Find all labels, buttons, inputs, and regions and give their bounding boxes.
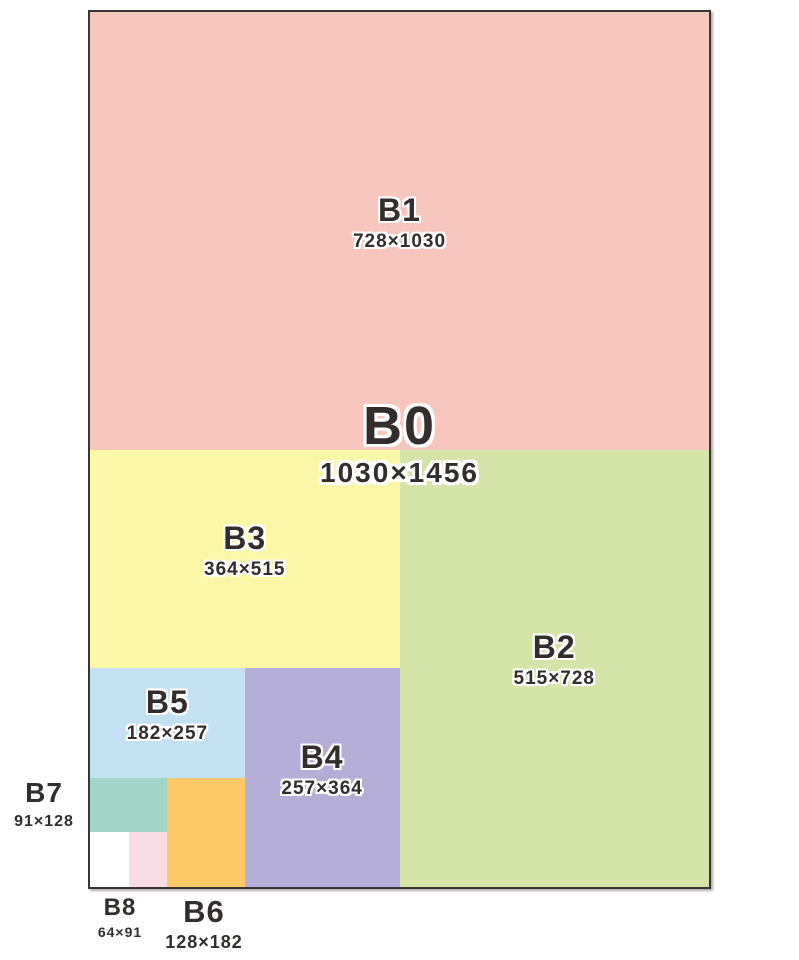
region-b6 bbox=[167, 778, 244, 887]
region-b4: B4 257×364 bbox=[245, 668, 400, 887]
b5-size-name: B5 bbox=[127, 683, 209, 721]
b0-size-name: B0 bbox=[320, 398, 479, 454]
b6-size-name: B6 bbox=[150, 893, 258, 930]
b1-label: B1 728×1030 bbox=[353, 191, 446, 255]
b3-label: B3 364×515 bbox=[204, 519, 286, 583]
b0-label: B0 1030×1456 bbox=[320, 398, 479, 489]
b5-label: B5 182×257 bbox=[127, 683, 209, 747]
b6-dimensions: 128×182 bbox=[150, 930, 258, 954]
region-b7 bbox=[90, 778, 167, 833]
b7-label: B7 91×128 bbox=[0, 776, 88, 834]
b3-size-name: B3 bbox=[204, 519, 286, 557]
region-b5: B5 182×257 bbox=[90, 668, 245, 777]
b4-size-name: B4 bbox=[281, 738, 363, 776]
b4-dimensions: 257×364 bbox=[281, 776, 363, 802]
b1-size-name: B1 bbox=[353, 191, 446, 229]
region-b1: B1 728×1030 bbox=[90, 12, 709, 450]
b2-label: B2 515×728 bbox=[514, 628, 596, 692]
b5-dimensions: 182×257 bbox=[127, 721, 209, 747]
b2-dimensions: 515×728 bbox=[514, 666, 596, 692]
region-b2: B2 515×728 bbox=[400, 450, 710, 888]
b8-dimensions: 64×91 bbox=[88, 923, 152, 941]
b7-dimensions: 91×128 bbox=[0, 810, 88, 834]
b3-dimensions: 364×515 bbox=[204, 557, 286, 583]
b6-label: B6 128×182 bbox=[150, 893, 258, 954]
b8-label: B8 64×91 bbox=[88, 893, 152, 941]
region-b8 bbox=[90, 832, 129, 887]
b4-label: B4 257×364 bbox=[281, 738, 363, 802]
b7-size-name: B7 bbox=[0, 776, 88, 810]
b2-size-name: B2 bbox=[514, 628, 596, 666]
page: B1 728×1030 B2 515×728 B3 364×515 B4 257… bbox=[0, 0, 799, 960]
region-b9 bbox=[129, 832, 168, 887]
b8-size-name: B8 bbox=[88, 893, 152, 923]
b0-dimensions: 1030×1456 bbox=[320, 457, 479, 489]
paper-size-diagram: B1 728×1030 B2 515×728 B3 364×515 B4 257… bbox=[88, 10, 711, 889]
b1-dimensions: 728×1030 bbox=[353, 229, 446, 255]
